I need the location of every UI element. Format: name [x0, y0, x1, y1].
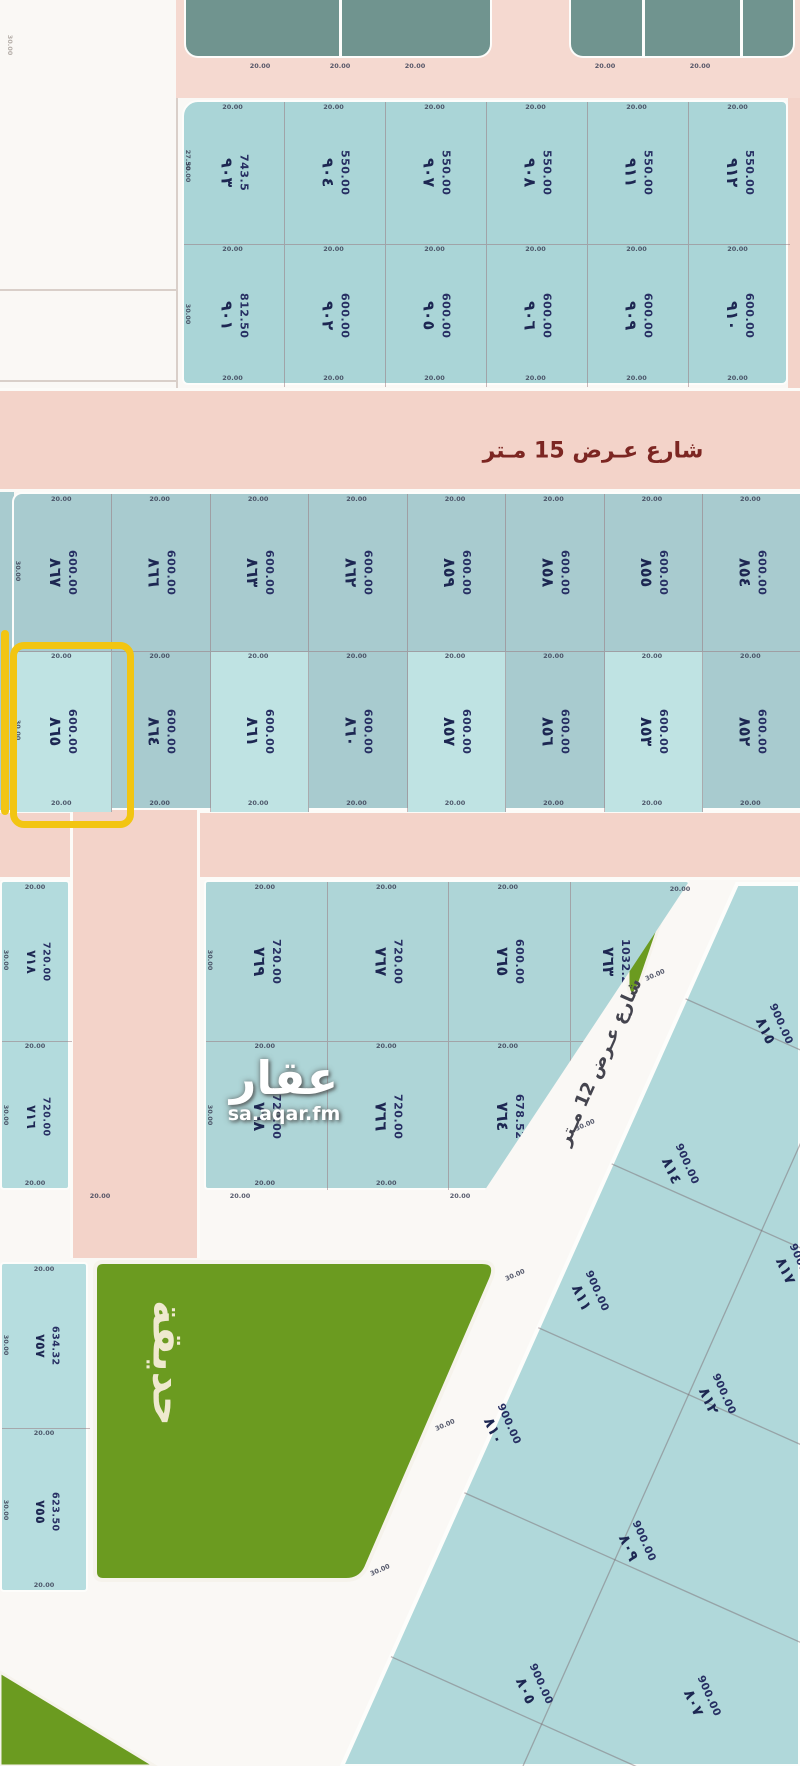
- dimension-label: 30.00: [2, 1105, 10, 1126]
- plot-number: ٧٦٥: [494, 947, 510, 976]
- dimension-label: 20.00: [230, 1192, 251, 1200]
- plot-label: ٩٠٣743.5: [184, 102, 284, 244]
- plot-label: ٨٦٧600.00: [14, 494, 111, 651]
- plot-٩١١[interactable]: ٩١١550.00: [588, 102, 689, 245]
- dimension-label: 30.00: [184, 304, 192, 325]
- plot-label: ٨٥٨600.00: [506, 494, 603, 651]
- plot-label: ٧١٦720.00: [2, 1042, 72, 1192]
- dimension-label: 20.00: [525, 103, 546, 111]
- dimension-label: 20.00: [727, 103, 748, 111]
- dimension-label: 20.00: [642, 652, 663, 660]
- plot-area: 600.00: [67, 550, 78, 595]
- highlight-edge-bar: [1, 630, 9, 815]
- plot-number: ٩١٢: [724, 158, 740, 187]
- plot-٨٥٥[interactable]: ٨٥٥600.00: [605, 494, 703, 652]
- north-block: ٩٠٣743.5٩٠٤550.00٩٠٧550.00٩٠٨550.00٩١١55…: [182, 100, 788, 385]
- dimension-label: 20.00: [626, 374, 647, 382]
- dimension-label: 20.00: [497, 883, 518, 891]
- plot-number: ٨٦٣: [244, 558, 260, 587]
- dimension-label: 20.00: [543, 652, 564, 660]
- highlight-box[interactable]: [10, 642, 134, 828]
- dimension-label: 20.00: [525, 245, 546, 253]
- plot-number: ٨٦٠: [343, 717, 359, 746]
- dimension-label: 20.00: [727, 245, 748, 253]
- dimension-label: 20.00: [254, 883, 275, 891]
- plot-area: 600.00: [461, 550, 472, 595]
- plot-label: ٨٦٠600.00: [309, 652, 406, 812]
- plot-٨٦٣[interactable]: ٨٦٣600.00: [211, 494, 309, 652]
- plot-area: 600.00: [643, 293, 654, 338]
- plot-area: 600.00: [542, 293, 553, 338]
- plot-area: 600.00: [461, 709, 472, 754]
- plot-number: ٩٠٨: [522, 158, 538, 187]
- plot-label: ٧٦٩720.00: [206, 882, 327, 1041]
- top-dark-block-2: [569, 0, 795, 58]
- dimension-label: 20.00: [405, 62, 426, 70]
- dimension-label: 30.00: [206, 1105, 214, 1126]
- plot-area: 600.00: [514, 939, 525, 984]
- plot-label: ٨٥٣600.00: [605, 652, 702, 812]
- plot-area: 600.00: [363, 550, 374, 595]
- plot-label: ٧٦٧720.00: [328, 882, 449, 1041]
- plot-٨٥٦[interactable]: ٨٥٦600.00: [506, 652, 604, 812]
- dimension-label: 20.00: [250, 62, 271, 70]
- plot-area: 623.50: [50, 1492, 60, 1532]
- dimension-label: 20.00: [90, 1192, 111, 1200]
- plot-area: 600.00: [166, 550, 177, 595]
- dimension-label: 30.00: [2, 1499, 10, 1520]
- dimension-label: 20.00: [248, 495, 269, 503]
- plot-٧٦٧[interactable]: ٧٦٧720.00: [328, 882, 450, 1042]
- dimension-label: 20.00: [222, 374, 243, 382]
- plot-number: ٩٠٣: [219, 158, 235, 187]
- dark-block-gap: [339, 0, 342, 58]
- dimension-label: 30.00: [14, 561, 22, 582]
- dimension-label: 20.00: [376, 1042, 397, 1050]
- dimension-label: 20.00: [642, 495, 663, 503]
- dimension-label: 20.00: [525, 374, 546, 382]
- dimension-label: 20.00: [740, 652, 761, 660]
- dimension-label: 20.00: [543, 799, 564, 807]
- plot-number: ٨٥٧: [441, 717, 457, 746]
- plot-label: ٩٠٨550.00: [487, 102, 587, 244]
- plot-٨٦١[interactable]: ٨٦١600.00: [211, 652, 309, 812]
- watermark-logo: عقار: [228, 1055, 341, 1101]
- plot-number: ٧٦٦: [372, 1102, 388, 1131]
- plot-area: 634.32: [50, 1326, 60, 1366]
- plot-number: ٧٥٧: [33, 1334, 46, 1358]
- dimension-label: 20.00: [149, 495, 170, 503]
- plot-٨٥٧[interactable]: ٨٥٧600.00: [408, 652, 506, 812]
- dimension-label: 20.00: [626, 245, 647, 253]
- plot-٧١٨[interactable]: ٧١٨720.00: [2, 882, 72, 1042]
- plot-number: ٩٠٤: [320, 158, 336, 187]
- plot-area: 720.00: [41, 1097, 51, 1137]
- dimension-label: 20.00: [34, 1265, 55, 1273]
- plot-٩٠٦[interactable]: ٩٠٦600.00: [487, 245, 588, 387]
- dimension-label: 20.00: [330, 62, 351, 70]
- dimension-label: 20.00: [346, 799, 367, 807]
- plot-number: ٨٥٩: [441, 558, 457, 587]
- plot-area: 812.50: [239, 293, 250, 338]
- plot-label: ٨٦١600.00: [211, 652, 308, 812]
- dark-block-gap: [740, 0, 743, 58]
- plot-label: ٩٠٤550.00: [285, 102, 385, 244]
- plot-٩٠١[interactable]: ٩٠١812.50: [184, 245, 285, 387]
- plot-٨٥٨[interactable]: ٨٥٨600.00: [506, 494, 604, 652]
- plot-area: 600.00: [756, 709, 767, 754]
- plot-area: 550.00: [340, 150, 351, 195]
- dimension-label: 20.00: [323, 374, 344, 382]
- plot-area: 743.5: [239, 154, 250, 191]
- dimension-label: 20.00: [450, 1192, 471, 1200]
- plot-label: ٩٠٦600.00: [487, 245, 587, 387]
- plot-area: 600.00: [744, 293, 755, 338]
- plot-٧٦٥[interactable]: ٧٦٥600.00: [449, 882, 571, 1042]
- plot-label: ٨٦٦600.00: [112, 494, 209, 651]
- plot-area: 600.00: [441, 293, 452, 338]
- dimension-label: 27.50: [184, 150, 192, 171]
- dimension-label: 20.00: [445, 652, 466, 660]
- plot-٧٦٦[interactable]: ٧٦٦720.00: [328, 1042, 450, 1192]
- plot-area: 600.00: [363, 709, 374, 754]
- dimension-label: 20.00: [670, 885, 691, 893]
- plot-area: 600.00: [340, 293, 351, 338]
- dimension-label: 20.00: [445, 799, 466, 807]
- plot-number: ٨٥٤: [736, 558, 752, 587]
- dark-block-gap: [642, 0, 645, 58]
- plot-number: ٧٦٩: [251, 947, 267, 976]
- plot-number: ٧٦٤: [494, 1102, 510, 1131]
- plot-٩١٠[interactable]: ٩١٠600.00: [689, 245, 790, 387]
- plot-area: 600.00: [559, 709, 570, 754]
- dimension-label: 20.00: [254, 1042, 275, 1050]
- dimension-label: 20.00: [323, 103, 344, 111]
- plot-number: ٩٠٩: [623, 301, 639, 330]
- plot-area: 720.00: [392, 1094, 403, 1139]
- dimension-label: 20.00: [690, 62, 711, 70]
- top-dark-block-1: [184, 0, 492, 58]
- dimension-label: 20.00: [248, 652, 269, 660]
- plot-label: ٨٥٧600.00: [408, 652, 505, 812]
- plot-number: ٩١٠: [724, 301, 740, 330]
- dimension-label: 20.00: [740, 799, 761, 807]
- dimension-label: 20.00: [254, 1179, 275, 1187]
- dimension-label: 20.00: [323, 245, 344, 253]
- plot-number: ٧٥٥: [33, 1500, 46, 1524]
- plot-area: 600.00: [658, 709, 669, 754]
- plot-label: ٨٥٦600.00: [506, 652, 603, 812]
- plot-number: ٩٠٢: [320, 301, 336, 330]
- plot-٨٦٠[interactable]: ٨٦٠600.00: [309, 652, 407, 812]
- bottom-left-green-area: [0, 1672, 155, 1766]
- plot-label: ٧٥٧634.32: [2, 1264, 90, 1428]
- plot-area: 550.00: [441, 150, 452, 195]
- garden-label: حديقة: [144, 1300, 193, 1426]
- dimension-label: 30.00: [206, 950, 214, 971]
- plot-label: ٨٥٩600.00: [408, 494, 505, 651]
- plot-area: 720.00: [271, 939, 282, 984]
- plot-label: ٧٥٥623.50: [2, 1429, 90, 1594]
- plot-label: ٨٦٣600.00: [211, 494, 308, 651]
- plot-number: ٩٠٧: [421, 158, 437, 187]
- plot-number: ٨٦٤: [146, 717, 162, 746]
- plot-label: ٩١١550.00: [588, 102, 688, 244]
- plot-number: ٧١٦: [24, 1105, 37, 1129]
- plot-number: ٨٥٨: [539, 558, 555, 587]
- dimension-label: 20.00: [424, 245, 445, 253]
- plot-label: ٩١٠600.00: [689, 245, 790, 387]
- dimension-label: 20.00: [376, 883, 397, 891]
- plot-area: 550.00: [643, 150, 654, 195]
- dimension-label: 20.00: [727, 374, 748, 382]
- dimension-label: 20.00: [740, 495, 761, 503]
- dimension-label: 20.00: [149, 799, 170, 807]
- plot-٧٦٩[interactable]: ٧٦٩720.00: [206, 882, 328, 1042]
- dimension-label: 20.00: [25, 1042, 46, 1050]
- dimension-label: 20.00: [424, 374, 445, 382]
- plot-number: ٨٥٥: [638, 558, 654, 587]
- plot-٧٥٥[interactable]: ٧٥٥623.50: [2, 1429, 90, 1594]
- watermark-site: sa.aqar.fm: [228, 1103, 341, 1125]
- plot-area: 600.00: [658, 550, 669, 595]
- dimension-label: 30.00: [2, 1334, 10, 1355]
- watermark: عقار sa.aqar.fm: [228, 1055, 341, 1125]
- plot-٧٥٧[interactable]: ٧٥٧634.32: [2, 1264, 90, 1429]
- dimension-label: 20.00: [424, 103, 445, 111]
- parcel-map: 30.00 شارع عـرض 15 مـتر شارع عـرض 12 مـت…: [0, 0, 800, 1766]
- plot-٨٥٩[interactable]: ٨٥٩600.00: [408, 494, 506, 652]
- plot-٩٠٧[interactable]: ٩٠٧550.00: [386, 102, 487, 245]
- plot-٧١٦[interactable]: ٧١٦720.00: [2, 1042, 72, 1192]
- dimension-label: 20.00: [497, 1042, 518, 1050]
- plot-٩٠٣[interactable]: ٩٠٣743.5: [184, 102, 285, 245]
- plot-label: ٨٥٢600.00: [703, 652, 800, 812]
- plot-number: ٧٦٣: [600, 947, 616, 976]
- dimension-label: 20.00: [222, 103, 243, 111]
- plot-label: ٩٠٢600.00: [285, 245, 385, 387]
- dimension-label: 20.00: [222, 245, 243, 253]
- plot-label: ٨٦٢600.00: [309, 494, 406, 651]
- dimension-label: 20.00: [51, 495, 72, 503]
- plot-number: ٨٥٦: [539, 717, 555, 746]
- plot-label: ٩١٢550.00: [689, 102, 790, 244]
- plot-number: ٩٠٥: [421, 301, 437, 330]
- plot-٩٠٥[interactable]: ٩٠٥600.00: [386, 245, 487, 387]
- plot-label: ٧٦٦720.00: [328, 1042, 449, 1192]
- plot-area: 720.00: [41, 942, 51, 982]
- plot-٨٦٢[interactable]: ٨٦٢600.00: [309, 494, 407, 652]
- plot-٩١٢[interactable]: ٩١٢550.00: [689, 102, 790, 245]
- plot-area: 720.00: [392, 939, 403, 984]
- plot-٨٦٦[interactable]: ٨٦٦600.00: [112, 494, 210, 652]
- plot-label: ٨٥٤600.00: [703, 494, 800, 651]
- dimension-label: 20.00: [376, 1179, 397, 1187]
- plot-٨٦٧[interactable]: ٨٦٧600.00: [14, 494, 112, 652]
- vertical-road: [70, 810, 200, 1258]
- dimension-label: 20.00: [34, 1581, 55, 1589]
- plot-٩٠٨[interactable]: ٩٠٨550.00: [487, 102, 588, 245]
- plot-number: ٧٦٧: [372, 947, 388, 976]
- dimension-label: 20.00: [595, 62, 616, 70]
- plot-number: ٨٦٧: [47, 558, 63, 587]
- plot-label: ٨٥٥600.00: [605, 494, 702, 651]
- plot-number: ٩١١: [623, 158, 639, 187]
- plot-number: ٨٥٢: [736, 717, 752, 746]
- plot-area: 550.00: [744, 150, 755, 195]
- plot-number: ٨٦١: [244, 717, 260, 746]
- dimension-label: 20.00: [543, 495, 564, 503]
- dimension-label: 20.00: [34, 1429, 55, 1437]
- dimension-label: 20.00: [25, 1179, 46, 1187]
- plot-٨٥٣[interactable]: ٨٥٣600.00: [605, 652, 703, 812]
- plot-٨٥٤[interactable]: ٨٥٤600.00: [703, 494, 800, 652]
- plot-٩٠٩[interactable]: ٩٠٩600.00: [588, 245, 689, 387]
- plot-area: 600.00: [756, 550, 767, 595]
- plot-٩٠٢[interactable]: ٩٠٢600.00: [285, 245, 386, 387]
- plot-number: ٩٠٦: [522, 301, 538, 330]
- dimension-label: 20.00: [149, 652, 170, 660]
- dimension-label: 20.00: [346, 495, 367, 503]
- plot-area: 600.00: [166, 709, 177, 754]
- plot-number: ٨٥٣: [638, 717, 654, 746]
- dimension-label: 20.00: [445, 495, 466, 503]
- garden-side-block: ٧٥٧634.32٧٥٥623.50: [0, 1262, 88, 1592]
- plot-number: ٨٦٦: [146, 558, 162, 587]
- plot-label: ٩٠٧550.00: [386, 102, 486, 244]
- plot-label: ٧٦٥600.00: [449, 882, 570, 1041]
- plot-number: ٩٠١: [219, 301, 235, 330]
- plot-area: 600.00: [559, 550, 570, 595]
- dimension-label: 20.00: [25, 883, 46, 891]
- plot-number: ٧١٨: [24, 950, 37, 974]
- west-sliver-block: ٧١٨720.00٧١٦720.00: [0, 880, 70, 1190]
- street-15m-label: شارع عـرض 15 مـتر: [483, 439, 704, 464]
- plot-area: 550.00: [542, 150, 553, 195]
- dimension-label: 20.00: [248, 799, 269, 807]
- dimension-label: 20.00: [642, 799, 663, 807]
- plot-number: ٨٦٢: [343, 558, 359, 587]
- plot-label: ٩٠١812.50: [184, 245, 284, 387]
- dimension-label: 20.00: [626, 103, 647, 111]
- plot-label: ٧١٨720.00: [2, 882, 72, 1041]
- plot-٩٠٤[interactable]: ٩٠٤550.00: [285, 102, 386, 245]
- dimension-label: 20.00: [346, 652, 367, 660]
- dimension-label: 30.00: [2, 950, 10, 971]
- plot-area: 600.00: [264, 550, 275, 595]
- plot-٨٥٢[interactable]: ٨٥٢600.00: [703, 652, 800, 812]
- plot-area: 600.00: [264, 709, 275, 754]
- plot-label: ٩٠٥600.00: [386, 245, 486, 387]
- plot-label: ٩٠٩600.00: [588, 245, 688, 387]
